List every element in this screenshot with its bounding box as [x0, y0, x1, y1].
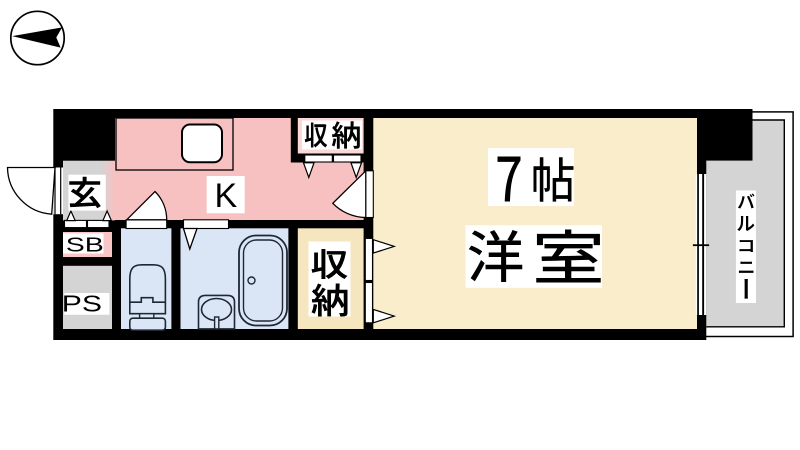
svg-text:SB: SB	[66, 233, 104, 256]
svg-text:K: K	[214, 177, 237, 215]
svg-text:PS: PS	[62, 291, 102, 317]
